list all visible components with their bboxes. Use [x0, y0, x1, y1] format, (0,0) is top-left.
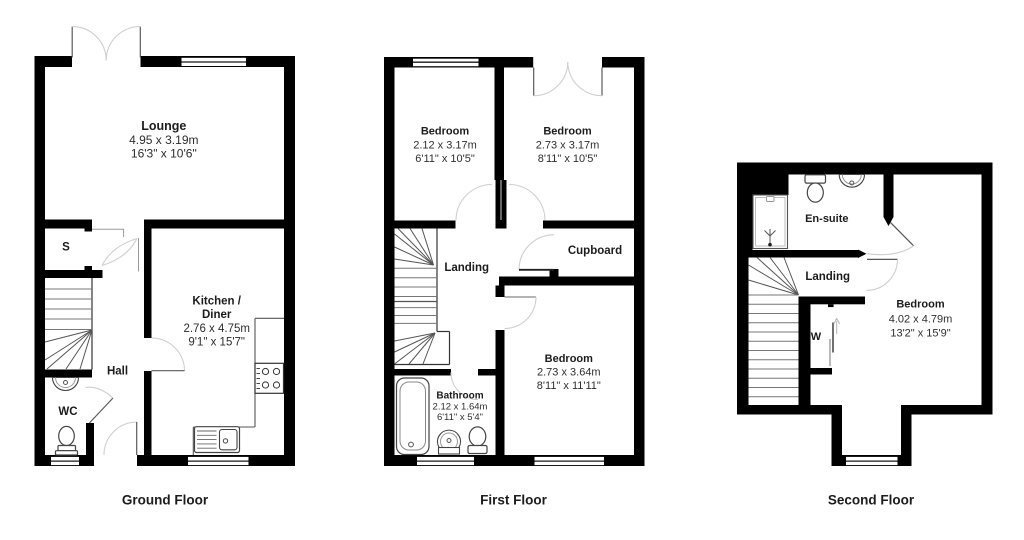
svg-text:Kitchen /: Kitchen /: [192, 296, 241, 308]
svg-text:Diner: Diner: [202, 309, 232, 321]
svg-text:Bathroom: Bathroom: [436, 391, 483, 402]
svg-text:4.95 x 3.19m: 4.95 x 3.19m: [129, 133, 198, 147]
svg-text:WC: WC: [58, 406, 77, 418]
svg-text:Bedroom: Bedroom: [896, 299, 945, 311]
svg-text:S: S: [62, 242, 70, 254]
svg-text:4.02 x 4.79m: 4.02 x 4.79m: [889, 313, 953, 325]
svg-text:Landing: Landing: [805, 271, 850, 283]
svg-text:Lounge: Lounge: [141, 119, 186, 133]
svg-text:13'2" x 15'9": 13'2" x 15'9": [890, 328, 950, 340]
svg-text:8'11" x 11'11": 8'11" x 11'11": [537, 380, 601, 392]
svg-text:Ground Floor: Ground Floor: [122, 493, 209, 508]
svg-text:2.73 x 3.17m: 2.73 x 3.17m: [536, 139, 600, 151]
svg-text:2.76 x 4.75m: 2.76 x 4.75m: [183, 323, 249, 335]
svg-text:2.12 x 3.17m: 2.12 x 3.17m: [413, 139, 477, 151]
svg-text:First Floor: First Floor: [480, 493, 547, 508]
svg-text:2.12 x 1.64m: 2.12 x 1.64m: [433, 401, 488, 412]
svg-text:Second Floor: Second Floor: [828, 493, 915, 508]
svg-text:Bedroom: Bedroom: [421, 125, 470, 137]
svg-text:Bedroom: Bedroom: [545, 353, 594, 365]
svg-text:16'3" x 10'6": 16'3" x 10'6": [131, 147, 197, 161]
svg-text:Hall: Hall: [107, 366, 128, 378]
svg-text:W: W: [811, 331, 822, 343]
svg-text:Bedroom: Bedroom: [543, 125, 592, 137]
svg-text:6'11" x 10'5": 6'11" x 10'5": [415, 153, 475, 165]
svg-text:6'11" x 5'4": 6'11" x 5'4": [437, 412, 483, 423]
svg-text:Cupboard: Cupboard: [568, 245, 622, 257]
svg-text:8'11" x 10'5": 8'11" x 10'5": [538, 153, 598, 165]
svg-text:9'1" x 15'7": 9'1" x 15'7": [188, 337, 245, 349]
svg-text:Landing: Landing: [444, 262, 489, 274]
svg-text:En-suite: En-suite: [805, 213, 848, 225]
svg-text:2.73 x 3.64m: 2.73 x 3.64m: [537, 366, 601, 378]
